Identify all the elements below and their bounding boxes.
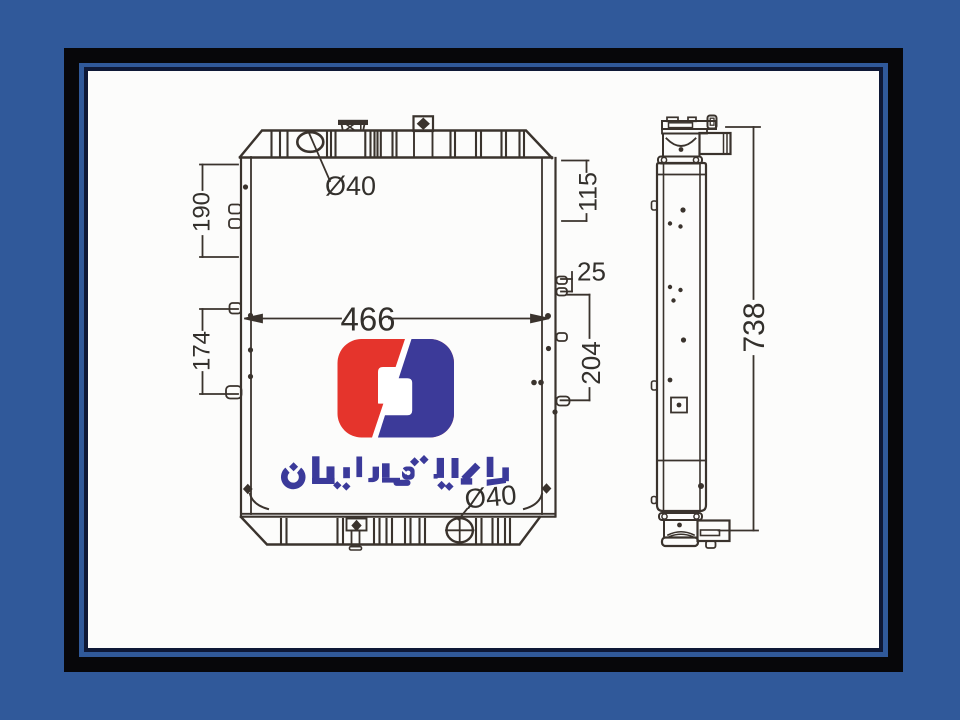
svg-text:25: 25	[577, 257, 606, 287]
svg-text:204: 204	[576, 341, 606, 384]
svg-text:115: 115	[575, 172, 603, 212]
svg-text:174: 174	[189, 331, 216, 371]
svg-text:190: 190	[189, 192, 216, 232]
svg-text:Ø40: Ø40	[325, 171, 376, 201]
svg-text:466: 466	[340, 301, 395, 338]
svg-text:738: 738	[738, 302, 771, 352]
